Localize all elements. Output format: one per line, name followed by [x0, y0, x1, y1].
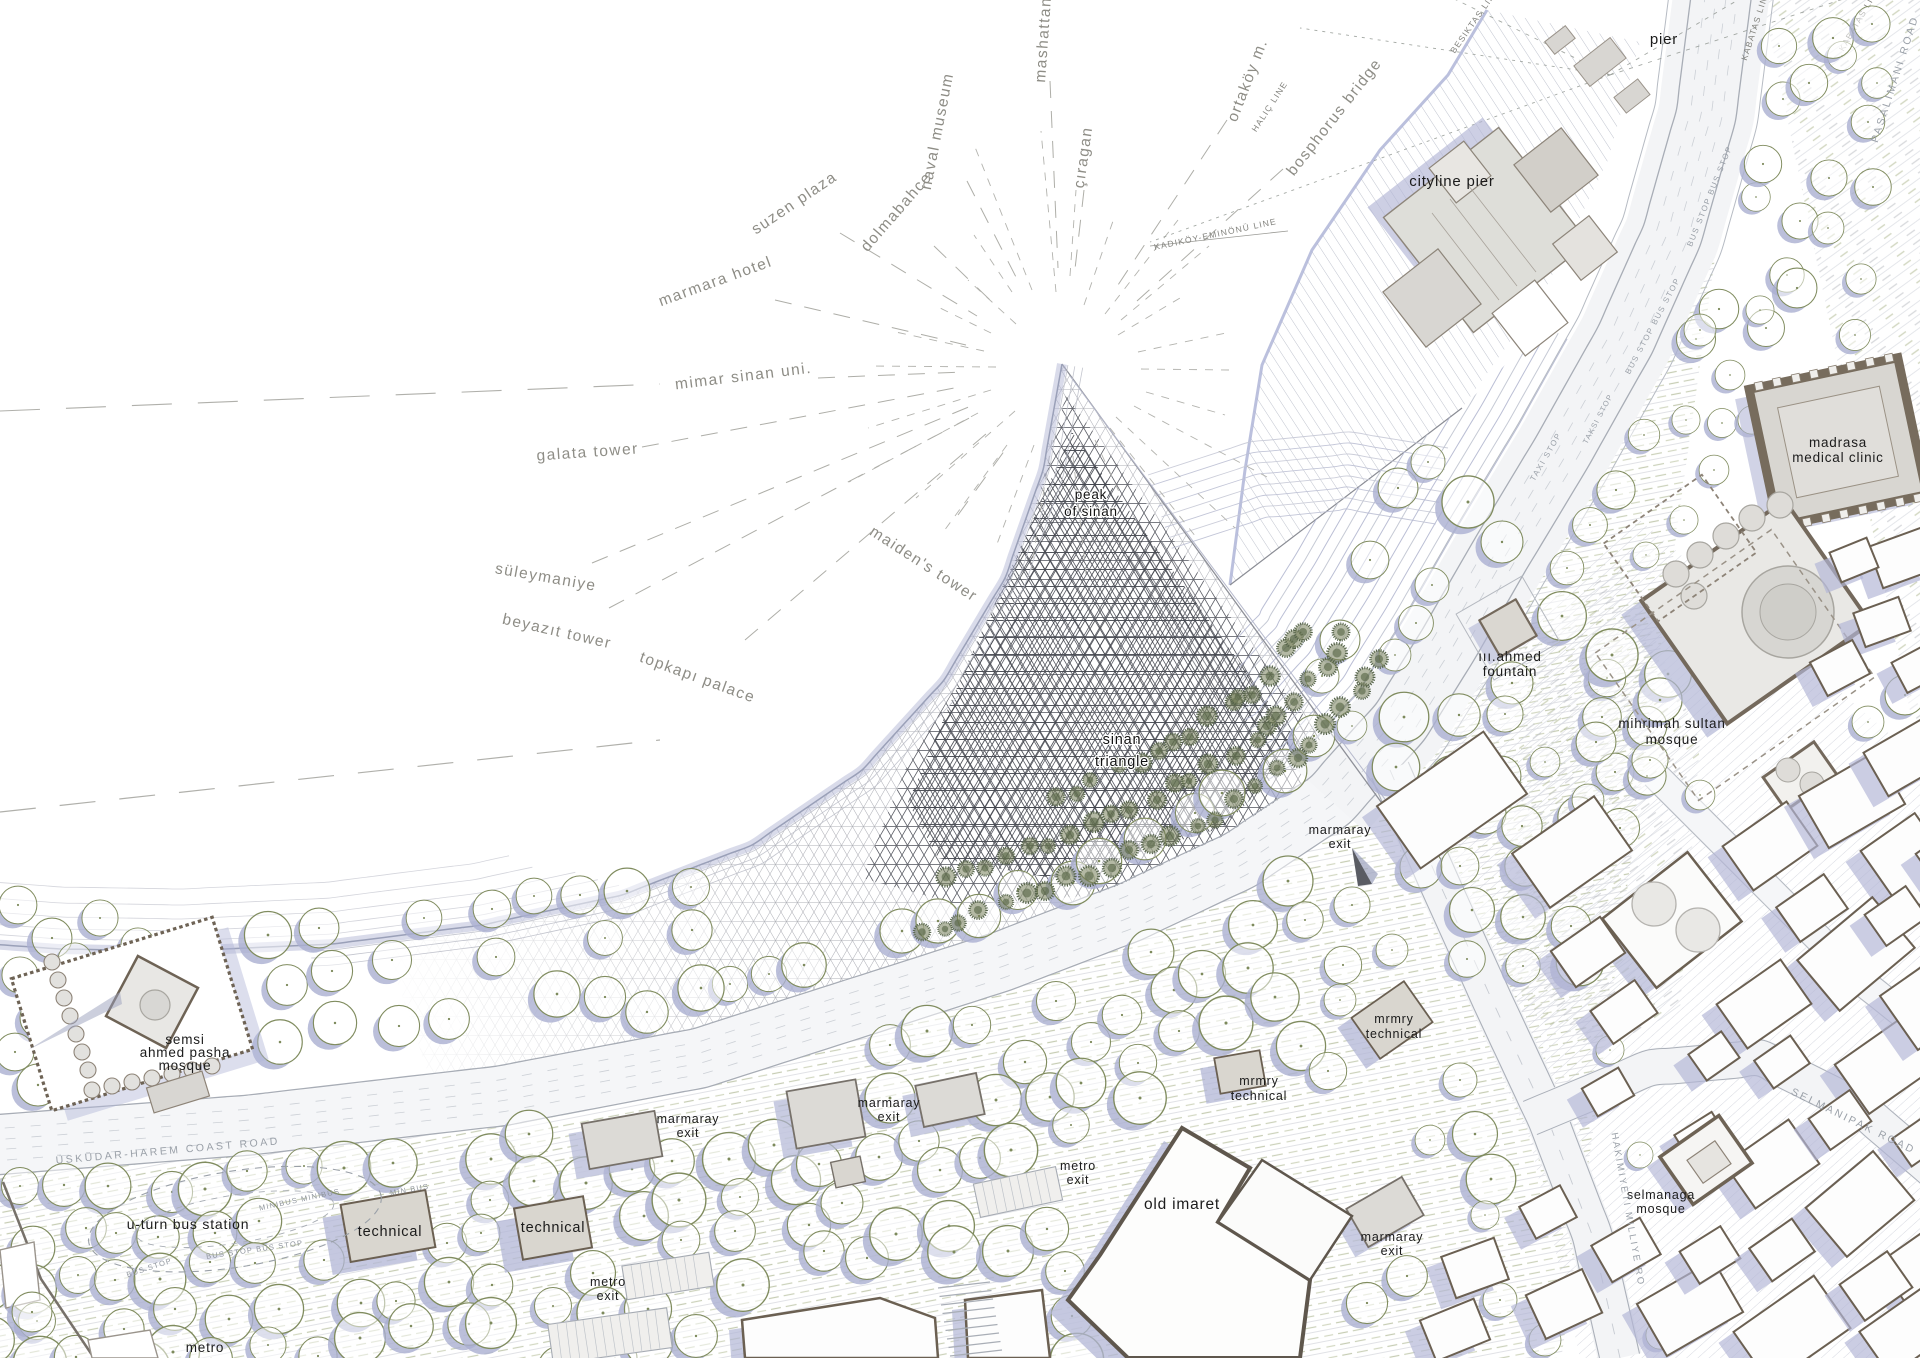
svg-text:technical: technical	[1366, 1027, 1423, 1041]
svg-text:exit: exit	[597, 1289, 620, 1303]
svg-text:technical: technical	[1231, 1089, 1288, 1103]
svg-text:marmaray: marmaray	[1361, 1230, 1424, 1244]
svg-text:mrmry: mrmry	[1239, 1074, 1278, 1088]
svg-text:exit: exit	[1329, 837, 1352, 851]
svg-text:peak: peak	[1075, 487, 1107, 502]
svg-text:selmanaga: selmanaga	[1627, 1188, 1695, 1202]
svg-text:old imaret: old imaret	[1144, 1196, 1220, 1213]
svg-text:marmaray: marmaray	[1309, 823, 1372, 837]
svg-text:exit: exit	[1381, 1244, 1404, 1258]
svg-text:mihrimah sultan: mihrimah sultan	[1618, 716, 1725, 731]
svg-text:ııı.ahmed: ııı.ahmed	[1478, 649, 1541, 664]
svg-text:mosque: mosque	[1646, 732, 1699, 747]
svg-text:exit: exit	[1067, 1173, 1090, 1187]
svg-text:marmaray: marmaray	[657, 1112, 720, 1126]
svg-text:marmaray: marmaray	[858, 1096, 921, 1110]
svg-text:of sinan: of sinan	[1064, 504, 1118, 519]
svg-text:exit: exit	[677, 1126, 700, 1140]
svg-text:technical: technical	[521, 1220, 585, 1236]
svg-text:madrasa: madrasa	[1809, 435, 1867, 450]
svg-text:pier: pier	[1650, 31, 1678, 48]
svg-text:technical: technical	[358, 1224, 422, 1240]
svg-text:metro: metro	[186, 1340, 225, 1355]
svg-text:mosque: mosque	[1636, 1202, 1685, 1216]
svg-text:medical clinic: medical clinic	[1792, 450, 1883, 465]
svg-text:sinan: sinan	[1103, 732, 1142, 748]
svg-text:exit: exit	[878, 1110, 901, 1124]
svg-text:triangle: triangle	[1095, 754, 1149, 770]
svg-text:cityline pier: cityline pier	[1409, 173, 1494, 190]
svg-text:fountain: fountain	[1483, 664, 1537, 679]
svg-text:mosque: mosque	[159, 1058, 212, 1073]
svg-text:u-turn bus station: u-turn bus station	[127, 1216, 250, 1232]
svg-text:metro: metro	[590, 1275, 626, 1289]
svg-text:mrmry: mrmry	[1374, 1012, 1413, 1026]
svg-text:metro: metro	[1060, 1159, 1096, 1173]
